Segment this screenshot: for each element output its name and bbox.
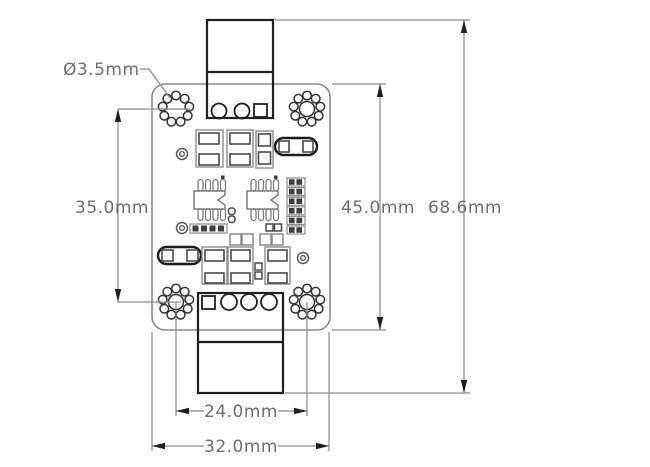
pad-grid-row: [287, 188, 305, 196]
top-connector-pad-square: [254, 104, 267, 117]
terminal-pad-round-2: [241, 294, 257, 310]
ic-footprint-right: [247, 176, 279, 221]
arrow-up: [377, 84, 383, 97]
header-pad-grid: [287, 178, 305, 234]
pad: [187, 250, 198, 261]
arrow-right: [316, 443, 329, 449]
pad: [303, 141, 313, 152]
capacitor-footprints-bottom: [202, 247, 290, 284]
arrow-down: [377, 317, 383, 330]
jumper-pad-strip: [190, 224, 227, 233]
dimension-board-height: 45.0mm: [332, 84, 415, 330]
pcb-dimension-drawing: Ø3.5mm 35.0mm 45.0mm 68.6mm 24.0mm: [0, 0, 650, 467]
arrow-right: [294, 408, 307, 414]
dimension-hole-diameter: Ø3.5mm: [63, 60, 170, 98]
dimension-board-width: 32.0mm: [152, 332, 329, 457]
arrow-up: [115, 109, 121, 122]
drawing-svg: Ø3.5mm 35.0mm 45.0mm 68.6mm 24.0mm: [0, 0, 650, 467]
test-point-right: [298, 253, 309, 264]
arrow-up: [461, 20, 467, 33]
cap-footprint: [196, 130, 223, 167]
smd-pad-row: [230, 234, 283, 245]
bottom-connector: [198, 293, 283, 393]
small-passive-horizontal: [266, 224, 282, 231]
capacitor-footprints-top: [196, 130, 273, 168]
dimension-hole-pitch-horizontal: 24.0mm: [176, 302, 307, 422]
terminal-pad-round-3: [261, 294, 277, 310]
top-connector: [207, 20, 273, 119]
dimension-hole-pitch-vertical: 35.0mm: [75, 109, 190, 302]
dimension-label-35mm: 35.0mm: [75, 198, 149, 218]
inductor-footprint-top: [275, 138, 317, 155]
inductor-footprint-bottom: [158, 247, 201, 264]
dimension-label-24mm: 24.0mm: [204, 402, 278, 422]
pad-grid-row: [287, 197, 305, 205]
cap-footprint: [227, 130, 253, 167]
cap-footprint: [228, 247, 253, 284]
cap-footprint: [256, 131, 273, 168]
top-connector-pad-round-2: [235, 104, 250, 119]
small-passive-vertical: [255, 263, 262, 279]
dimension-label-hole-diameter: Ø3.5mm: [63, 60, 140, 80]
mounting-hole-top-right: [289, 91, 324, 126]
pad-grid-row: [287, 207, 305, 215]
dimension-label-68.6mm: 68.6mm: [428, 198, 502, 218]
arrow-left: [152, 443, 165, 449]
cap-footprint: [202, 247, 227, 284]
pad: [162, 250, 173, 261]
small-passive-vertical: [229, 208, 236, 223]
terminal-pad-square: [202, 296, 215, 309]
hole-center-circle: [300, 102, 315, 117]
pad-grid-row: [287, 178, 305, 186]
pad-grid-row: [287, 226, 305, 234]
top-connector-pad-round-1: [212, 104, 227, 119]
arrow-left: [176, 408, 189, 414]
cap-footprint: [265, 247, 290, 284]
pad-grid-row: [287, 216, 305, 224]
test-point-middle: [177, 223, 188, 234]
dimension-label-45mm: 45.0mm: [341, 198, 415, 218]
terminal-pad-round-1: [221, 294, 237, 310]
dimension-label-32mm: 32.0mm: [204, 437, 278, 457]
arrow-down: [115, 289, 121, 302]
ic-footprint-left: [194, 176, 226, 221]
pad: [279, 141, 289, 152]
test-point-top: [177, 149, 188, 160]
arrow-down: [461, 380, 467, 393]
